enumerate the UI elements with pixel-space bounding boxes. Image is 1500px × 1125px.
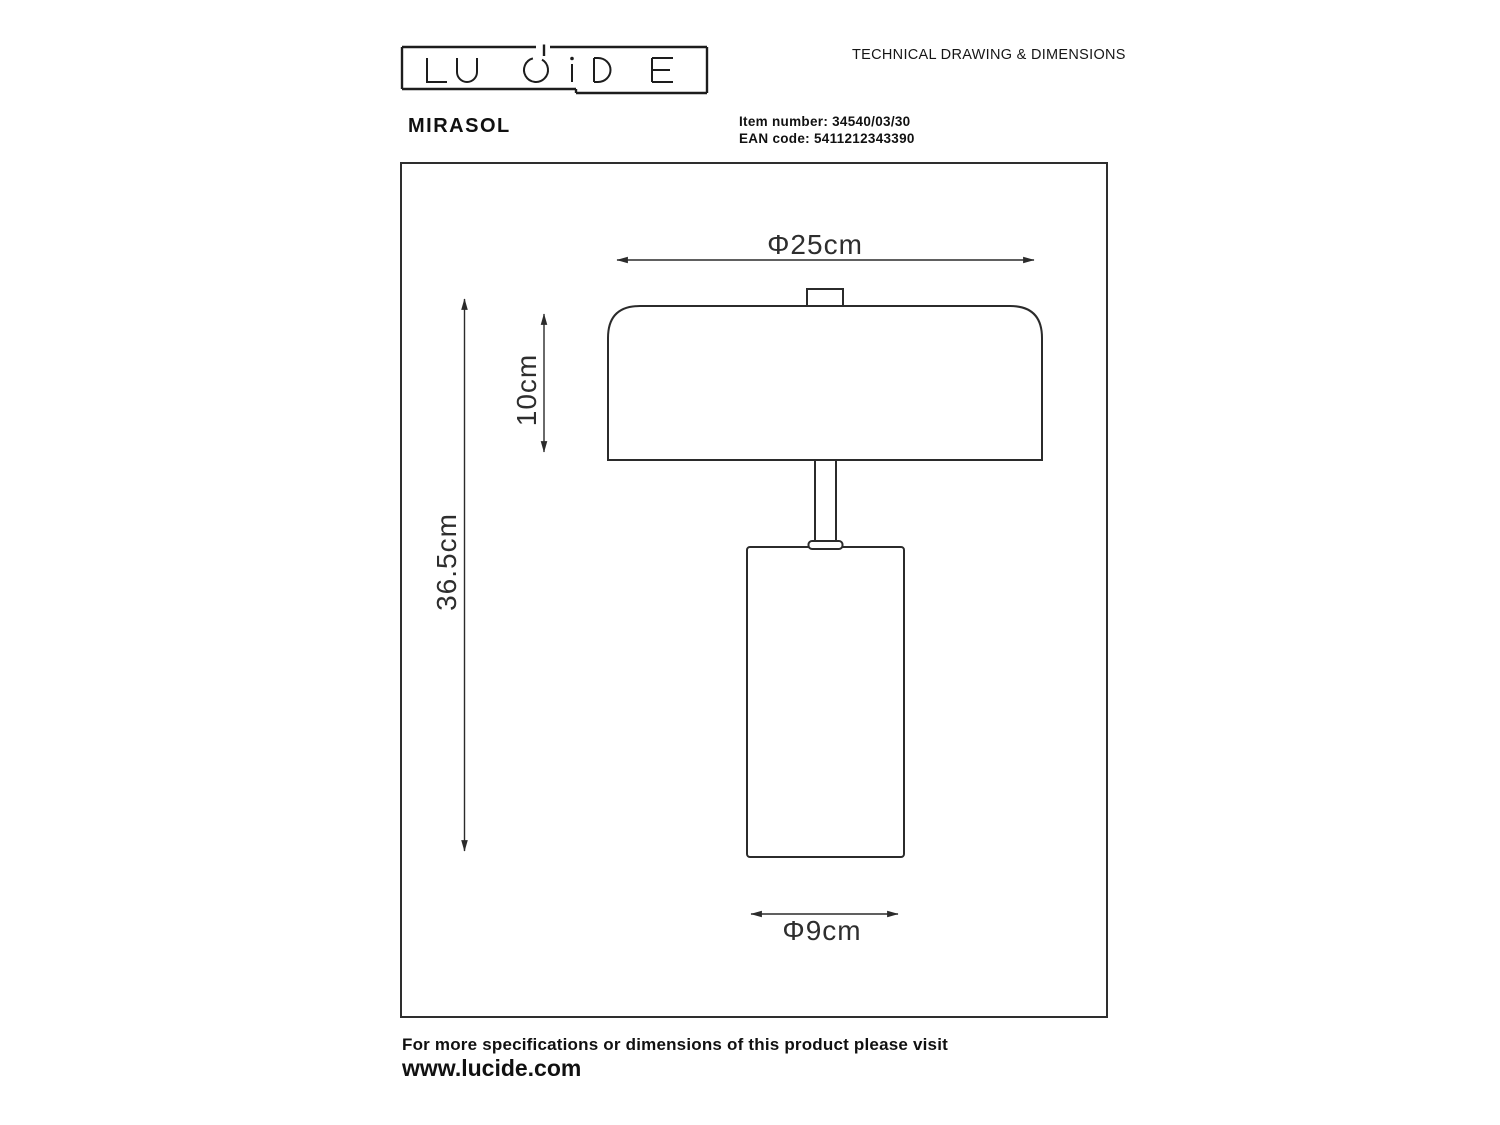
lamp-stem	[815, 459, 836, 544]
lamp-technical-drawing	[0, 0, 1500, 1125]
dim-label-base-diameter: Φ9cm	[722, 915, 922, 947]
dim-label-shade-diameter: Φ25cm	[715, 229, 915, 261]
technical-drawing-sheet: TECHNICAL DRAWING & DIMENSIONS MIRASOL I…	[0, 0, 1500, 1125]
footer-website: www.lucide.com	[402, 1055, 581, 1082]
lamp-shade	[608, 306, 1042, 460]
dim-label-total-height: 36.5cm	[431, 490, 463, 634]
dim-label-shade-height: 10cm	[511, 340, 543, 440]
lamp-collar	[809, 541, 843, 549]
lamp-base	[747, 547, 904, 857]
footer-note: For more specifications or dimensions of…	[402, 1035, 948, 1055]
lamp-finial	[807, 289, 843, 306]
